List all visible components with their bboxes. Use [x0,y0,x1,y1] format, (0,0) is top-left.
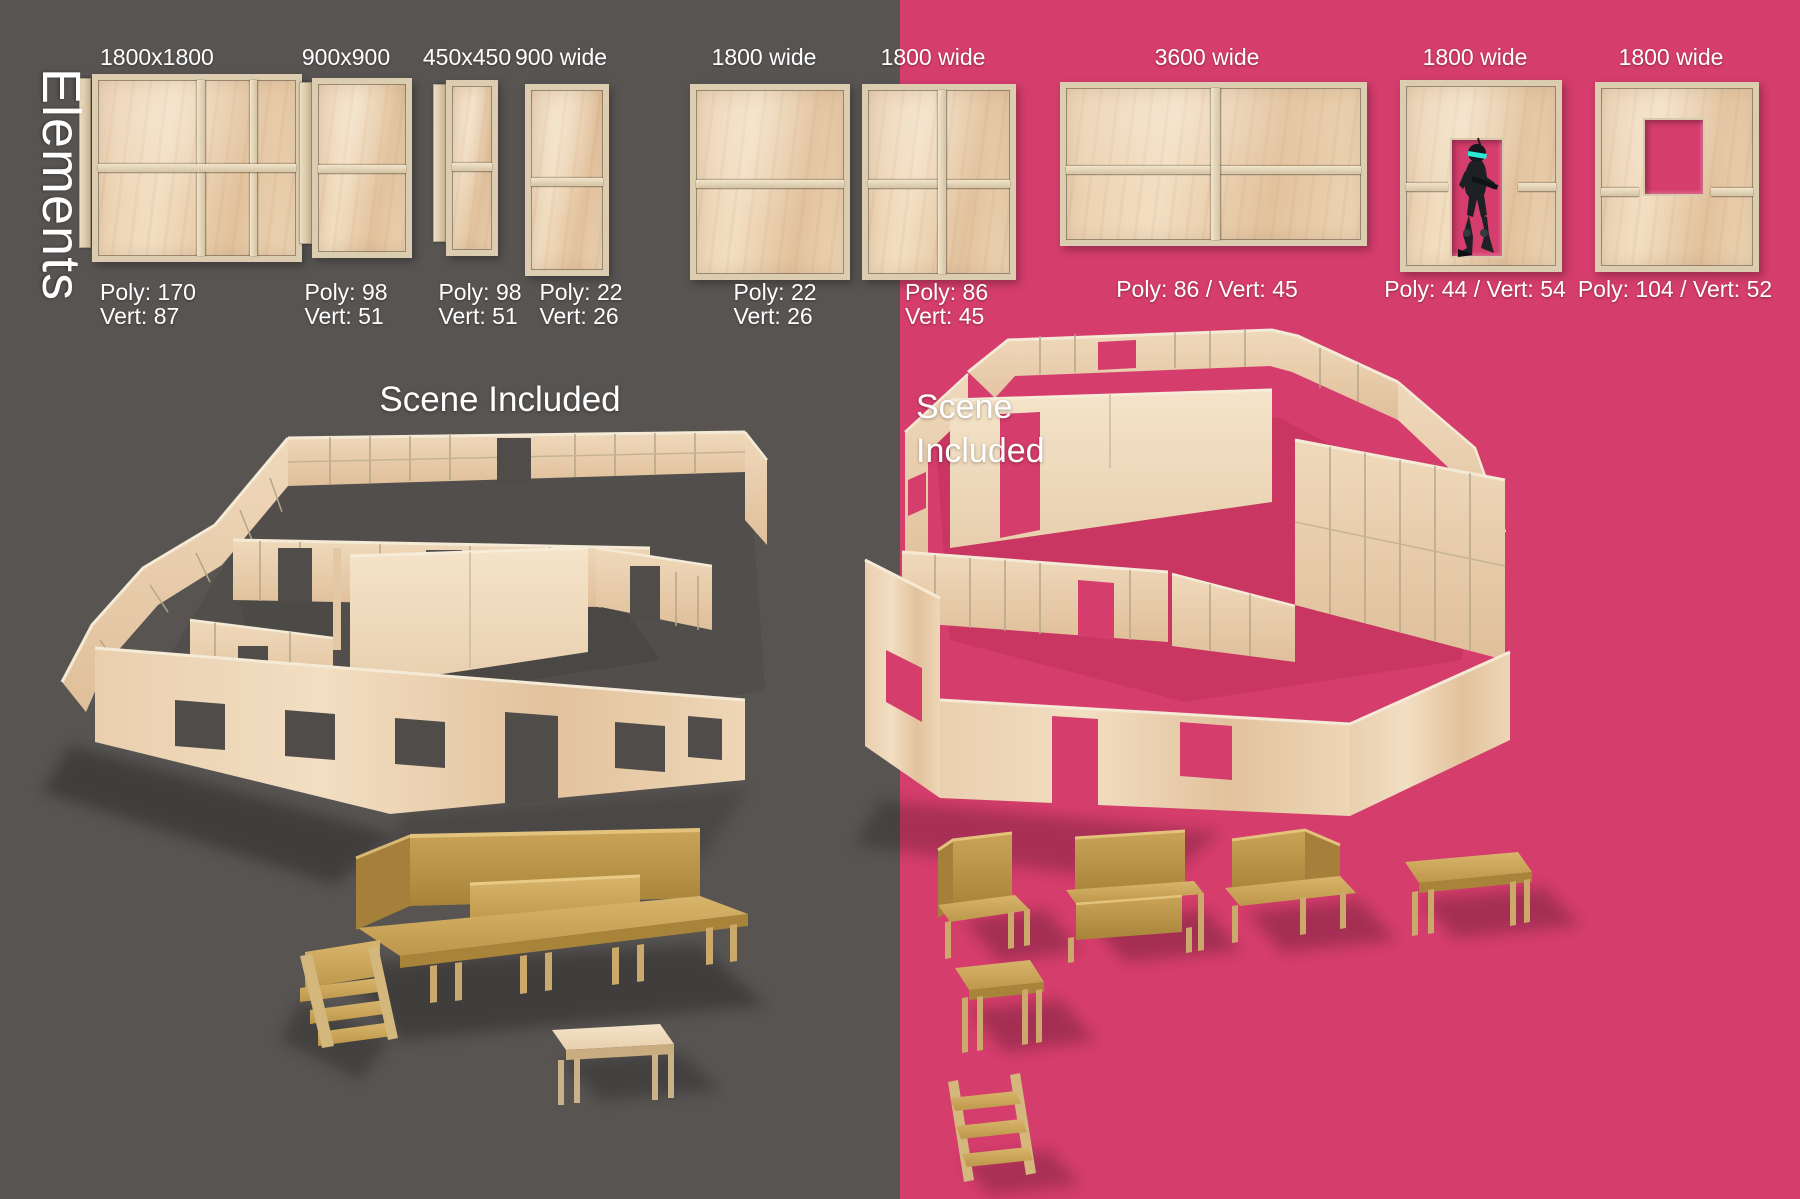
soldier-figure [1451,136,1501,258]
panel-450x450-edge [433,84,446,242]
panel-1800-wide [690,84,850,280]
right-scene-window [1180,722,1232,780]
panel-900x900-edge [299,82,312,244]
panel-1800-wide-grid [862,84,1016,280]
left-scene-front-door [505,712,558,804]
right-furniture [938,830,1580,1195]
left-scene-structure [42,432,767,885]
window-opening [1643,118,1705,196]
left-scene-window [615,722,665,772]
stats-1800-wide-grid: Poly: 86Vert: 45 [905,280,988,328]
panel-900x900 [312,78,412,258]
left-scene-caption: Scene Included [330,380,670,420]
product-sheet: Elements [0,0,1800,1199]
left-scene-window [285,710,335,760]
stats-1800-wide: Poly: 22Vert: 26 [695,280,855,328]
right-scene-partition-door [1078,580,1114,640]
stats-900-wide: Poly: 22Vert: 26 [501,280,661,328]
left-scene-right-door [630,566,660,622]
panel-1800x1800 [92,74,302,262]
panel-3600-wide [1060,82,1367,246]
size-label-900-wide: 900 wide [481,44,641,70]
right-scene-caption-line1: Scene [916,388,1012,427]
size-label-1800x1800: 1800x1800 [100,44,214,70]
left-furniture [280,830,765,1105]
left-scene-window [175,700,225,750]
left-scene-window [688,716,722,760]
page-title-elements: Elements [30,68,92,301]
right-scene-back-window [1098,340,1136,370]
panel-900-wide [525,84,609,276]
left-scene-window [395,718,445,768]
size-label-3600-wide: 3600 wide [1107,44,1307,70]
left-scene-back-door-opening [497,438,531,484]
left-scene-partition-door [278,548,312,602]
panel-450x450 [446,80,498,256]
stats-3600-wide: Poly: 86 / Vert: 45 [1087,276,1327,302]
right-scene-center-door [1000,412,1040,538]
panel-1800-window [1595,82,1759,272]
size-label-1800-wide-grid: 1800 wide [853,44,1013,70]
right-scene-front-door [1052,716,1098,812]
panel-1800-doorway [1400,80,1562,272]
size-label-1800-window: 1800 wide [1571,44,1771,70]
stats-1800x1800: Poly: 170Vert: 87 [100,280,196,328]
right-scene-caption-line2: Included [916,432,1045,471]
size-label-1800-doorway: 1800 wide [1375,44,1575,70]
right-scene-front-wall [940,700,1350,816]
stats-1800-window: Poly: 104 / Vert: 52 [1545,276,1800,302]
size-label-1800-wide: 1800 wide [684,44,844,70]
